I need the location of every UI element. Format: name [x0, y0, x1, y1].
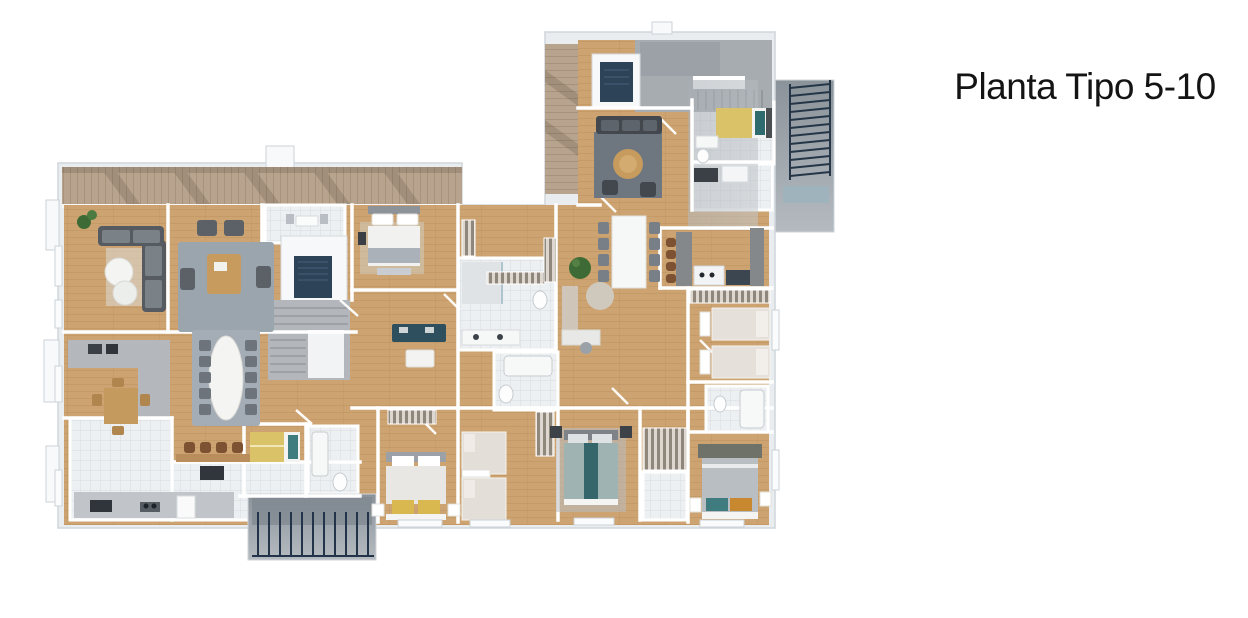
- round-rug: [586, 282, 614, 310]
- floorplan-page: Planta Tipo 5-10: [0, 0, 1248, 618]
- plant: [569, 257, 591, 279]
- bedroom-c: [550, 426, 632, 512]
- upper-unit-living: [594, 116, 662, 198]
- page-title: Planta Tipo 5-10: [930, 66, 1240, 108]
- round-coffee-table: [113, 281, 137, 305]
- coffee-table: [207, 254, 241, 294]
- stair-landing: [308, 330, 344, 378]
- elevator-upper: [600, 62, 633, 102]
- breakfast-table: [104, 388, 138, 424]
- dining-room-left: [192, 330, 260, 426]
- bedroom-yellow: [250, 432, 300, 462]
- upper-unit-deck: [545, 44, 578, 194]
- top-deck-terrace: [62, 167, 462, 208]
- bottom-balcony: [248, 494, 376, 560]
- bathroom-4: [643, 472, 687, 520]
